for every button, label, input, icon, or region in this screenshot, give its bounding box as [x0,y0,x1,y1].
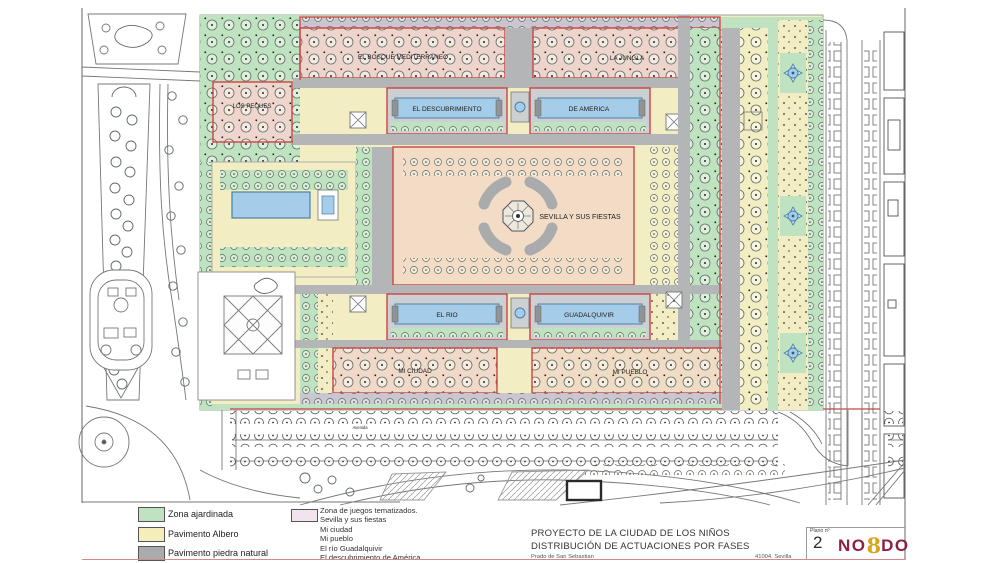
legend-swatch-albero [138,527,165,542]
pergola-kiosk [350,296,366,312]
legend-label-garden: Zona ajardinada [168,509,233,519]
pool [232,192,310,218]
label-peques: LOS PEQUES [233,104,272,110]
pergola-kiosk [350,112,366,128]
legend-themed-item: Mi ciudad [320,525,420,534]
pavilion-block [198,272,295,400]
legend-swatch-themed [291,509,318,522]
label-sevilla: SEVILLA Y SUS FIESTAS [539,214,621,221]
logo-no: NO [838,536,867,555]
avenue-tree-rows [222,410,903,470]
legend-themed-title: Zona de juegos tematizados. [320,506,420,515]
zone-bosque-mediterraneo [300,28,505,78]
legend-label-albero: Pavimento Albero [168,529,239,539]
site-plan-sheet: EL BOSQUE MEDITERRANEO LA JUNGLA EL DESC… [0,0,1000,563]
nosdo-logo: NO8DO [838,533,910,558]
legend-themed-item: El río Guadalquivir [320,544,420,553]
label-america: DE AMERICA [569,106,610,113]
legend-themed-item: El descubrimiento de América [320,553,420,562]
legend-swatch-garden [138,507,165,522]
plan-drawing: EL BOSQUE MEDITERRANEO LA JUNGLA EL DESC… [0,0,1000,563]
plan-number: 2 [813,533,822,553]
park-map [198,15,880,410]
central-fountain [503,201,533,231]
label-guadalquivir: GUADALQUIVIR [564,312,614,319]
zone-los-peques [213,82,292,142]
pool-garden-block [212,162,356,277]
label-descubrimiento: EL DESCUBRIMIENTO [412,106,481,113]
label-rio: EL RIO [436,312,457,319]
titleblock-divider [806,527,807,560]
logo-do: DO [881,536,910,555]
label-pueblo: MI PUEBLO [613,369,648,376]
project-title: PROYECTO DE LA CIUDAD DE LOS NIÑOS [531,528,730,539]
sheet-bottom-border [82,559,905,560]
sheet-title: DISTRIBUCIÓN DE ACTUACIONES POR FASES [531,541,750,552]
label-avenida: Avenida [352,425,368,430]
label-bosque: EL BOSQUE MEDITERRANEO [358,54,448,61]
logo-madeja-icon: 8 [867,533,882,558]
legend-themed-list: Zona de juegos tematizados. Sevilla y su… [320,506,420,562]
label-ciudad: MI CIUDAD [398,368,432,375]
park-east-strips [722,20,823,410]
legend-label-stone: Pavimento piedra natural [168,548,268,558]
legend-themed-item: Mi pueblo [320,534,420,543]
legend-themed-item: Sevilla y sus fiestas [320,515,420,524]
label-jungla: LA JUNGLA [610,55,645,62]
